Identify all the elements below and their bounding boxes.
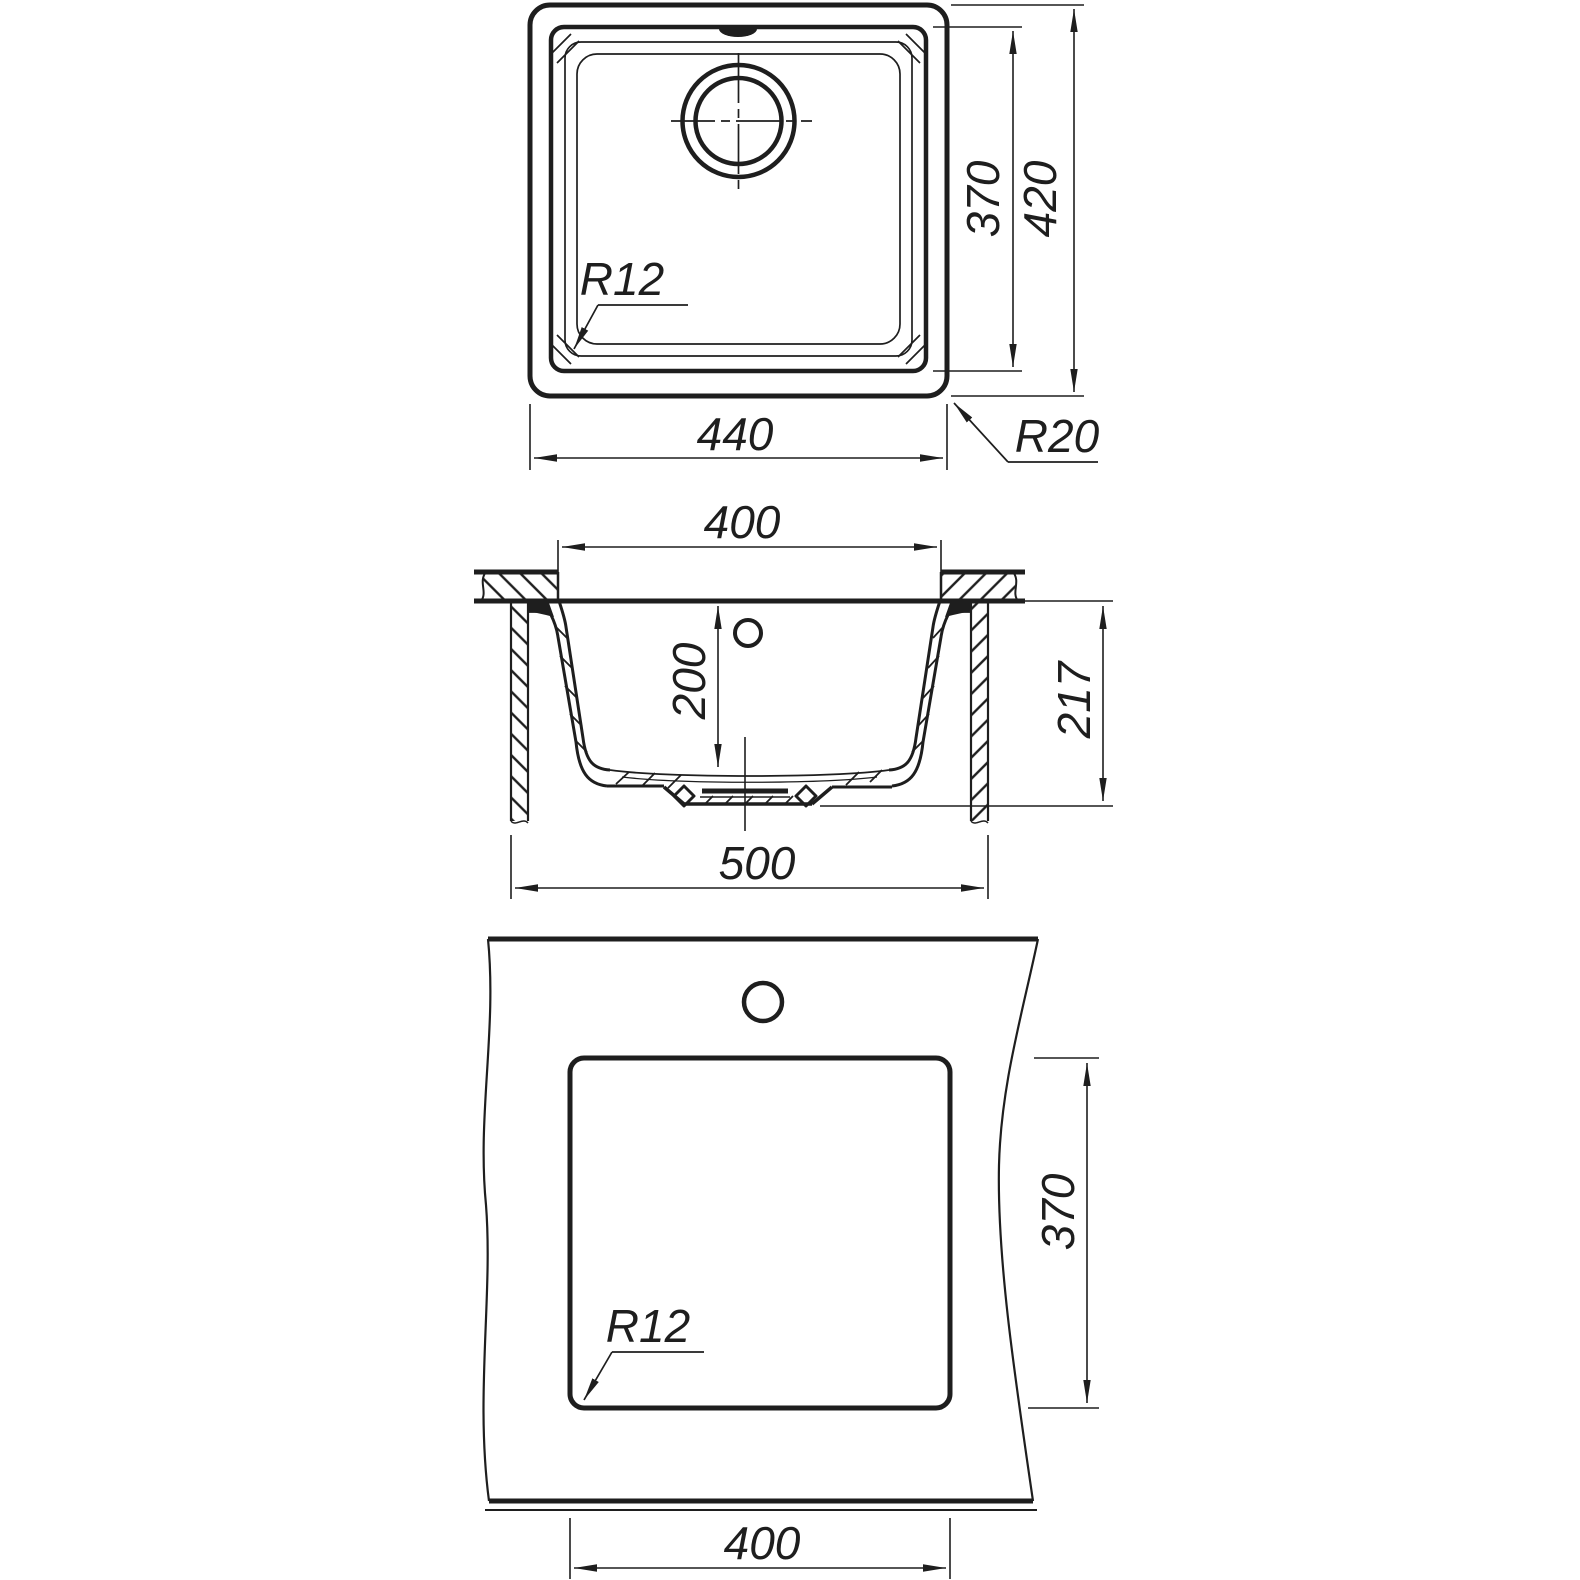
cabinet-panel-left-break (511, 821, 528, 823)
bowl-wall-right-outer (892, 615, 948, 786)
cabinet-panel-right-break (971, 821, 988, 823)
overflow-hole-section (735, 620, 761, 646)
section-depth-label: 200 (663, 642, 715, 720)
top-bowl-corner-radius-label: R12 (580, 253, 664, 305)
sink-drawing-svg: R12 440 370 420 R20 (0, 0, 1580, 1580)
section-bowl-width-label: 400 (704, 496, 781, 548)
rim-lip-right (945, 603, 971, 617)
cutout-height-label: 370 (1032, 1173, 1084, 1250)
cutout-width-label: 400 (724, 1517, 801, 1569)
bowl-floor-outer-line (607, 786, 892, 787)
section-view: 400 200 217 500 (474, 496, 1113, 899)
worktop-left-break-edge (484, 939, 491, 1501)
top-width-label: 440 (697, 408, 774, 460)
section-height-label: 217 (1048, 660, 1100, 739)
rim-lip-left (528, 603, 554, 617)
cutout-view: R12 370 400 (484, 939, 1099, 1579)
cutout-corner-radius-label: R12 (606, 1300, 690, 1352)
top-height-label: 420 (1014, 160, 1066, 237)
top-outer-corner-radius-label: R20 (1015, 410, 1100, 462)
cabinet-panel-right-hatch (971, 601, 988, 821)
cutout-r12-leader-arrow (584, 1352, 612, 1400)
bowl-wall-left-outer (551, 615, 607, 786)
countertop-right-hatch (941, 572, 1018, 601)
cabinet-panel-left-hatch (511, 601, 528, 821)
faucet-hole (744, 983, 782, 1021)
drawing-canvas: R12 440 370 420 R20 (0, 0, 1580, 1580)
overflow-notch (719, 29, 757, 37)
top-view: R12 440 370 420 R20 (530, 5, 1100, 470)
countertop-left-hatch (481, 572, 558, 601)
cutout-outline (570, 1058, 950, 1408)
top-bowl-height-label: 370 (957, 160, 1009, 237)
bowl-width-extension-lines (558, 540, 941, 600)
bowl-floor-slope-line (622, 777, 877, 782)
section-overall-width-label: 500 (719, 837, 796, 889)
r20-leader-arrow (954, 403, 1008, 462)
